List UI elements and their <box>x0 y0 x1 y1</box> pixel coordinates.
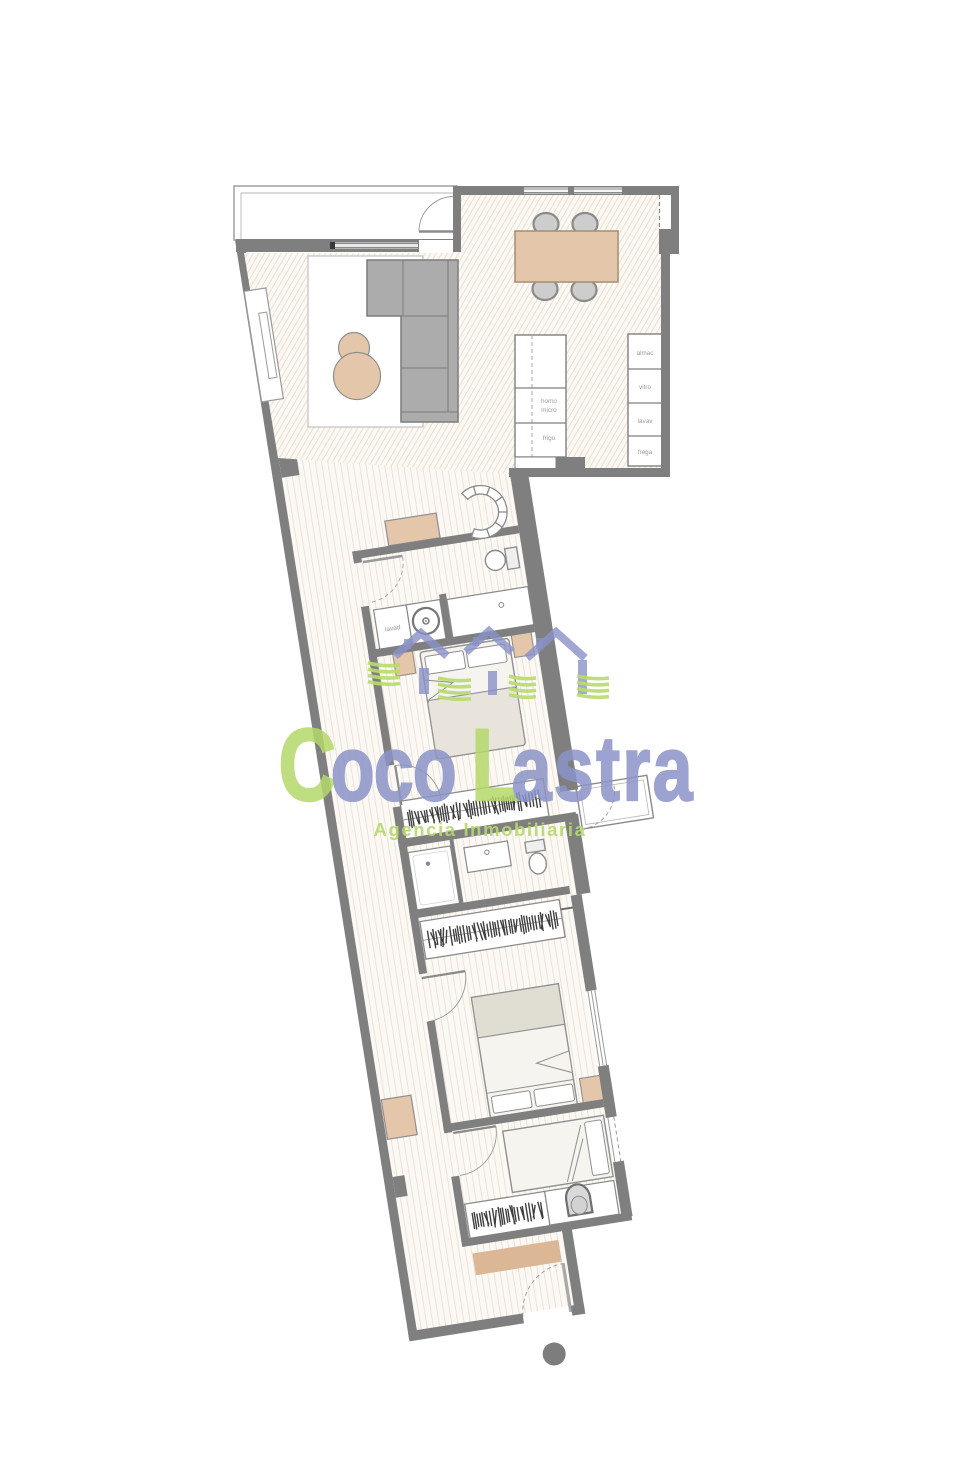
svg-text:C: C <box>278 709 335 823</box>
svg-text:almac: almac <box>637 350 654 357</box>
svg-text:oco: oco <box>331 717 456 820</box>
svg-text:micro: micro <box>541 407 557 414</box>
svg-text:frigo: frigo <box>543 435 556 442</box>
svg-text:frega: frega <box>638 449 653 456</box>
svg-text:horno: horno <box>541 398 558 405</box>
svg-text:astra: astra <box>512 717 695 820</box>
svg-text:vitro: vitro <box>639 384 651 391</box>
svg-text:Agencia Inmobiliaria: Agencia Inmobiliaria <box>374 819 587 840</box>
svg-text:lavav: lavav <box>638 418 654 425</box>
